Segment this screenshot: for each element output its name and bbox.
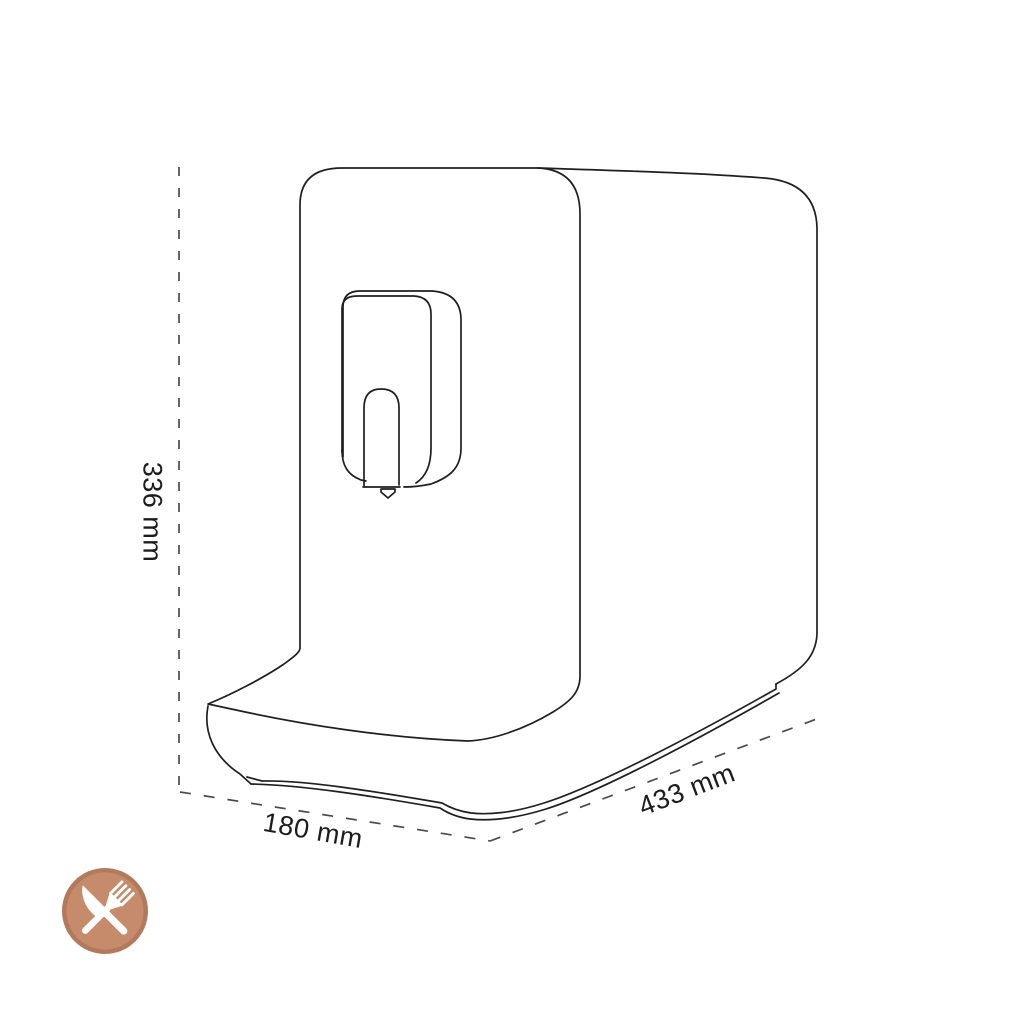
dimension-label-height: 336 mm [137,462,168,563]
machine-front-face-outline [208,168,580,741]
width-dimension-dashline [490,717,822,841]
food-badge [62,868,148,954]
dispenser-nozzle [381,489,395,498]
dispenser-outer-outline [343,291,461,487]
machine-outline [207,168,817,820]
dispenser-spout-slot [364,389,399,486]
base-left-edge [207,706,251,784]
dimension-guides [179,167,822,841]
dispenser-front-panel-bottom [342,450,366,481]
product-dimension-diagram: 336 mm 180 mm 433 mm [0,0,1024,1024]
